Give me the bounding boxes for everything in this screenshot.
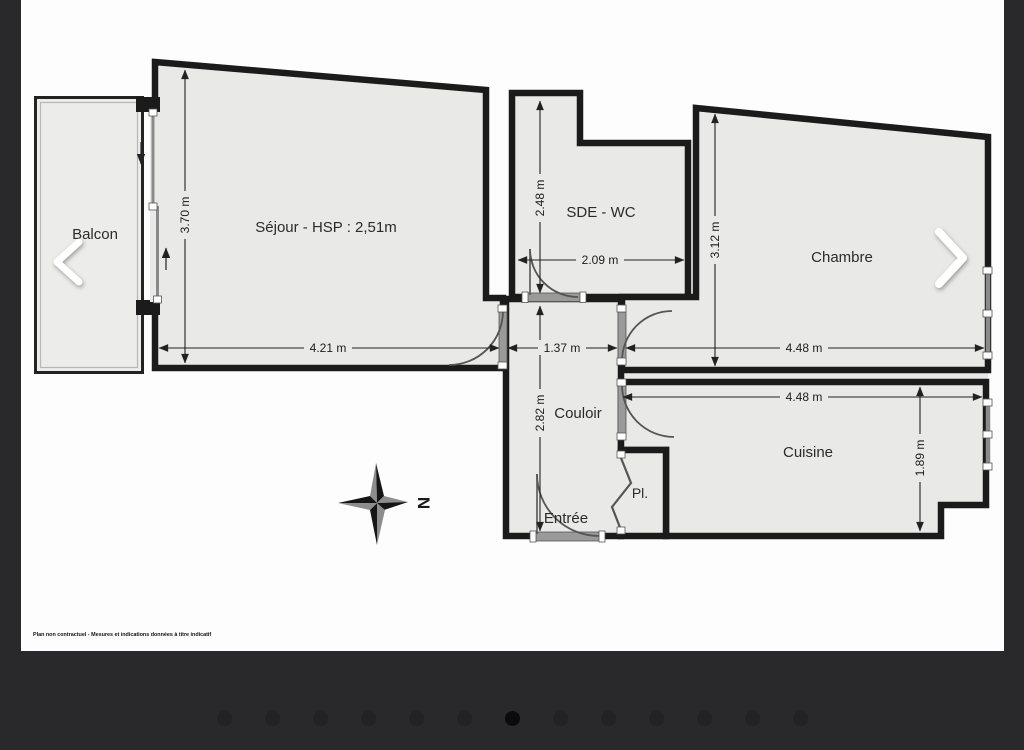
- dimension-chambre-height: 3.12 m: [707, 216, 722, 264]
- svg-text:1.89 m: 1.89 m: [913, 440, 927, 477]
- svg-text:3.70 m: 3.70 m: [178, 197, 192, 234]
- chevron-right-icon: [928, 226, 974, 290]
- svg-text:3.12 m: 3.12 m: [708, 222, 722, 259]
- carousel-dot[interactable]: [793, 711, 808, 726]
- dimension-couloir-width: 1.37 m: [538, 340, 586, 355]
- svg-text:4.48 m: 4.48 m: [786, 390, 823, 404]
- carousel-dot[interactable]: [649, 711, 664, 726]
- room-label-cuisine: Cuisine: [783, 444, 833, 461]
- plan-disclaimer: Plan non contractuel - Mesures et indica…: [33, 632, 211, 638]
- room-label-placard: Pl.: [632, 485, 648, 501]
- svg-text:4.21 m: 4.21 m: [310, 341, 347, 355]
- svg-text:1.37 m: 1.37 m: [544, 341, 581, 355]
- floorplan-image: 3.70 m 4.21 m 2.48 m 2.09 m 3.12 m 4.48 …: [0, 0, 1024, 750]
- carousel-dot[interactable]: [697, 711, 712, 726]
- dimension-couloir-height: 2.82 m: [532, 389, 547, 437]
- room-label-sejour: Séjour - HSP : 2,51m: [255, 219, 396, 236]
- carousel-dot[interactable]: [313, 711, 328, 726]
- carousel-dot-active[interactable]: [505, 711, 520, 726]
- carousel-dot[interactable]: [745, 711, 760, 726]
- listing-photo-viewer: 3.70 m 4.21 m 2.48 m 2.09 m 3.12 m 4.48 …: [0, 0, 1024, 750]
- dimension-sde-height: 2.48 m: [532, 174, 547, 222]
- carousel-dot[interactable]: [457, 711, 472, 726]
- carousel-dot[interactable]: [265, 711, 280, 726]
- dimension-sejour-width: 4.21 m: [304, 340, 352, 355]
- carousel-dot[interactable]: [409, 711, 424, 726]
- carousel-dots: [0, 711, 1024, 726]
- svg-text:2.82 m: 2.82 m: [533, 395, 547, 432]
- room-label-couloir: Couloir: [554, 405, 602, 422]
- svg-text:2.09 m: 2.09 m: [582, 253, 619, 267]
- carousel-dot[interactable]: [361, 711, 376, 726]
- carousel-prev-button[interactable]: [46, 232, 92, 292]
- carousel-next-button[interactable]: [928, 226, 974, 290]
- dimension-cuisine-width: 4.48 m: [780, 389, 828, 404]
- room-label-entree: Entrée: [544, 510, 588, 527]
- room-sejour: [155, 62, 503, 368]
- dimension-sejour-height: 3.70 m: [177, 191, 192, 239]
- carousel-dot[interactable]: [553, 711, 568, 726]
- carousel-dot[interactable]: [217, 711, 232, 726]
- carousel-dot[interactable]: [601, 711, 616, 726]
- room-label-sde-wc: SDE - WC: [566, 204, 635, 221]
- chevron-left-icon: [46, 232, 92, 292]
- dimension-chambre-width: 4.48 m: [780, 340, 828, 355]
- compass-north-label: N: [414, 497, 433, 509]
- dimension-sde-width: 2.09 m: [576, 252, 624, 267]
- svg-text:4.48 m: 4.48 m: [786, 341, 823, 355]
- svg-text:2.48 m: 2.48 m: [533, 180, 547, 217]
- room-label-chambre: Chambre: [811, 249, 873, 266]
- dimension-cuisine-height: 1.89 m: [912, 434, 927, 482]
